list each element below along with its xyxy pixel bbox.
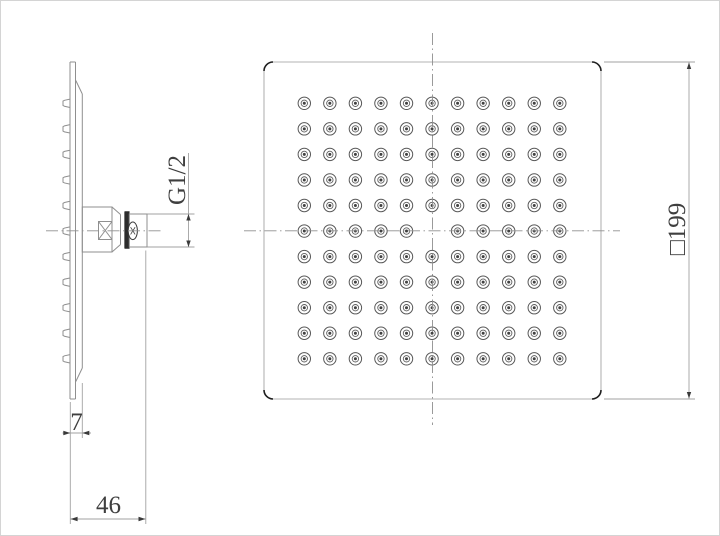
nozzle-profile [63, 278, 70, 286]
side-view: G1/2 7 46 [46, 62, 195, 524]
nozzle-profile [63, 304, 70, 312]
nozzle-profile [63, 176, 70, 184]
plate-thickness-dimension: 7 [63, 383, 92, 524]
taper-cone [112, 207, 125, 252]
nozzle-profile [63, 355, 70, 363]
front-view: □199 [244, 33, 695, 425]
thread-dimension: G1/2 [148, 153, 195, 247]
face-size-label: □199 [664, 203, 691, 256]
plate-thickness-label: 7 [70, 409, 83, 436]
nozzle-profile [63, 150, 70, 158]
mounting-block [82, 207, 112, 252]
nozzle-profile [63, 201, 70, 209]
nozzle-profile [63, 99, 70, 107]
thread-size-label: G1/2 [164, 155, 191, 205]
nozzle-profile [63, 329, 70, 337]
depth-dimension: 46 [70, 251, 146, 525]
depth-label: 46 [96, 492, 121, 519]
drawing-canvas: G1/2 7 46 [0, 0, 720, 536]
nozzle-profile [63, 252, 70, 260]
nozzle-profile [63, 125, 70, 133]
technical-drawing: G1/2 7 46 [1, 1, 720, 536]
